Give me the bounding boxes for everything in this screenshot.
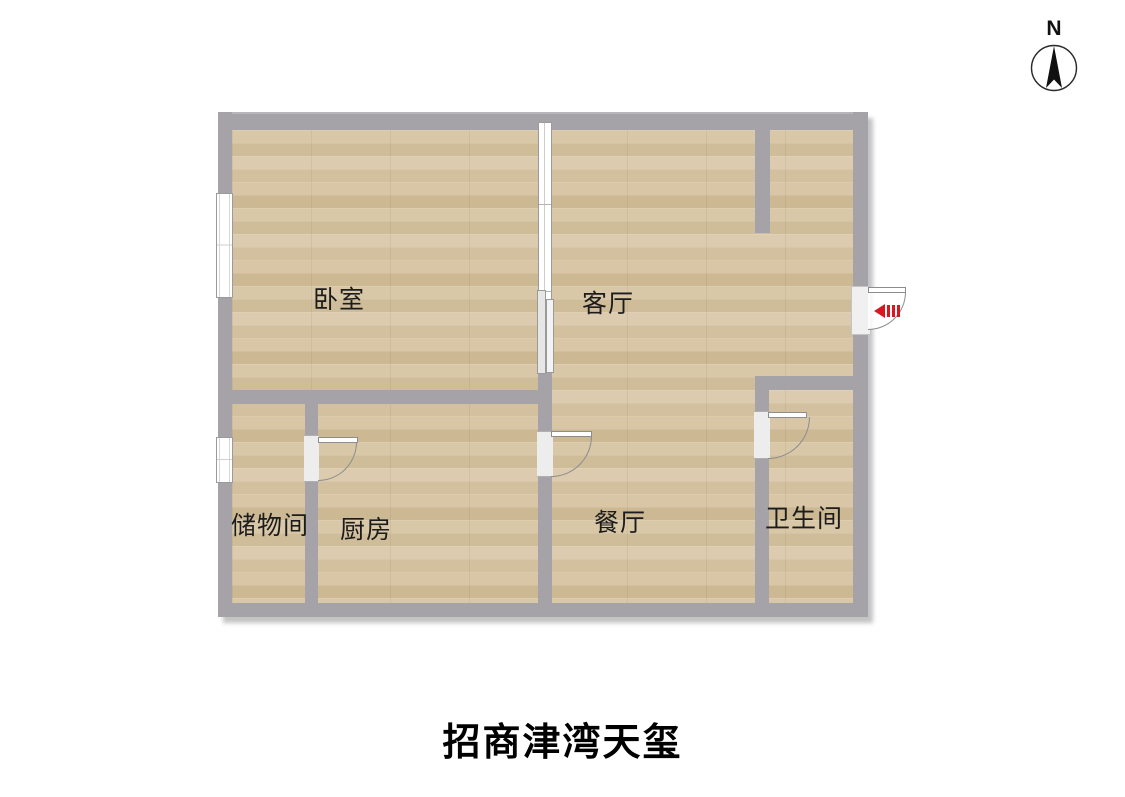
room-label-bathroom: 卫生间 xyxy=(765,499,843,535)
floorplan: 卧室 客厅 储物间 厨房 餐厅 卫生间 xyxy=(218,112,868,617)
entrance-arrow-icon xyxy=(874,303,904,318)
plan-title: 招商津湾天玺 xyxy=(0,711,1125,766)
compass-needle-icon xyxy=(1029,42,1079,94)
compass-north-label: N xyxy=(1024,18,1084,40)
sliding-door-panel xyxy=(537,290,546,374)
bedroom-window xyxy=(216,193,233,298)
kitchen-dining-door-leaf xyxy=(551,431,592,437)
entrance-arrow-bar xyxy=(897,305,900,317)
wall-storage-kitchen xyxy=(305,404,318,603)
entrance-arrow-bar xyxy=(887,305,890,317)
room-label-dining: 餐厅 xyxy=(594,503,646,539)
entrance-arrow-bar xyxy=(892,305,895,317)
compass: N xyxy=(1024,18,1084,100)
room-label-kitchen: 厨房 xyxy=(340,510,392,546)
storage-kitchen-door-jamb xyxy=(304,435,319,482)
partition-divider xyxy=(539,204,551,205)
sliding-door-panel xyxy=(546,299,554,373)
wall-right xyxy=(853,112,868,617)
entrance-door-leaf xyxy=(868,287,906,293)
room-label-living: 客厅 xyxy=(582,284,634,320)
room-label-bedroom: 卧室 xyxy=(313,280,365,316)
wall-bathroom-top xyxy=(755,376,868,390)
floorplan-canvas: N xyxy=(0,0,1125,797)
wall-entry-stub xyxy=(755,130,770,233)
bathroom-door-leaf xyxy=(768,412,807,418)
wall-bottom xyxy=(218,603,868,617)
storage-window xyxy=(216,437,233,483)
wall-bedroom-bottom xyxy=(218,390,552,404)
storage-kitchen-door-leaf xyxy=(318,437,358,443)
room-label-storage: 储物间 xyxy=(231,506,309,542)
wall-left xyxy=(218,112,232,617)
wall-partition-stub xyxy=(538,373,552,405)
entrance-arrow-triangle xyxy=(874,304,885,318)
